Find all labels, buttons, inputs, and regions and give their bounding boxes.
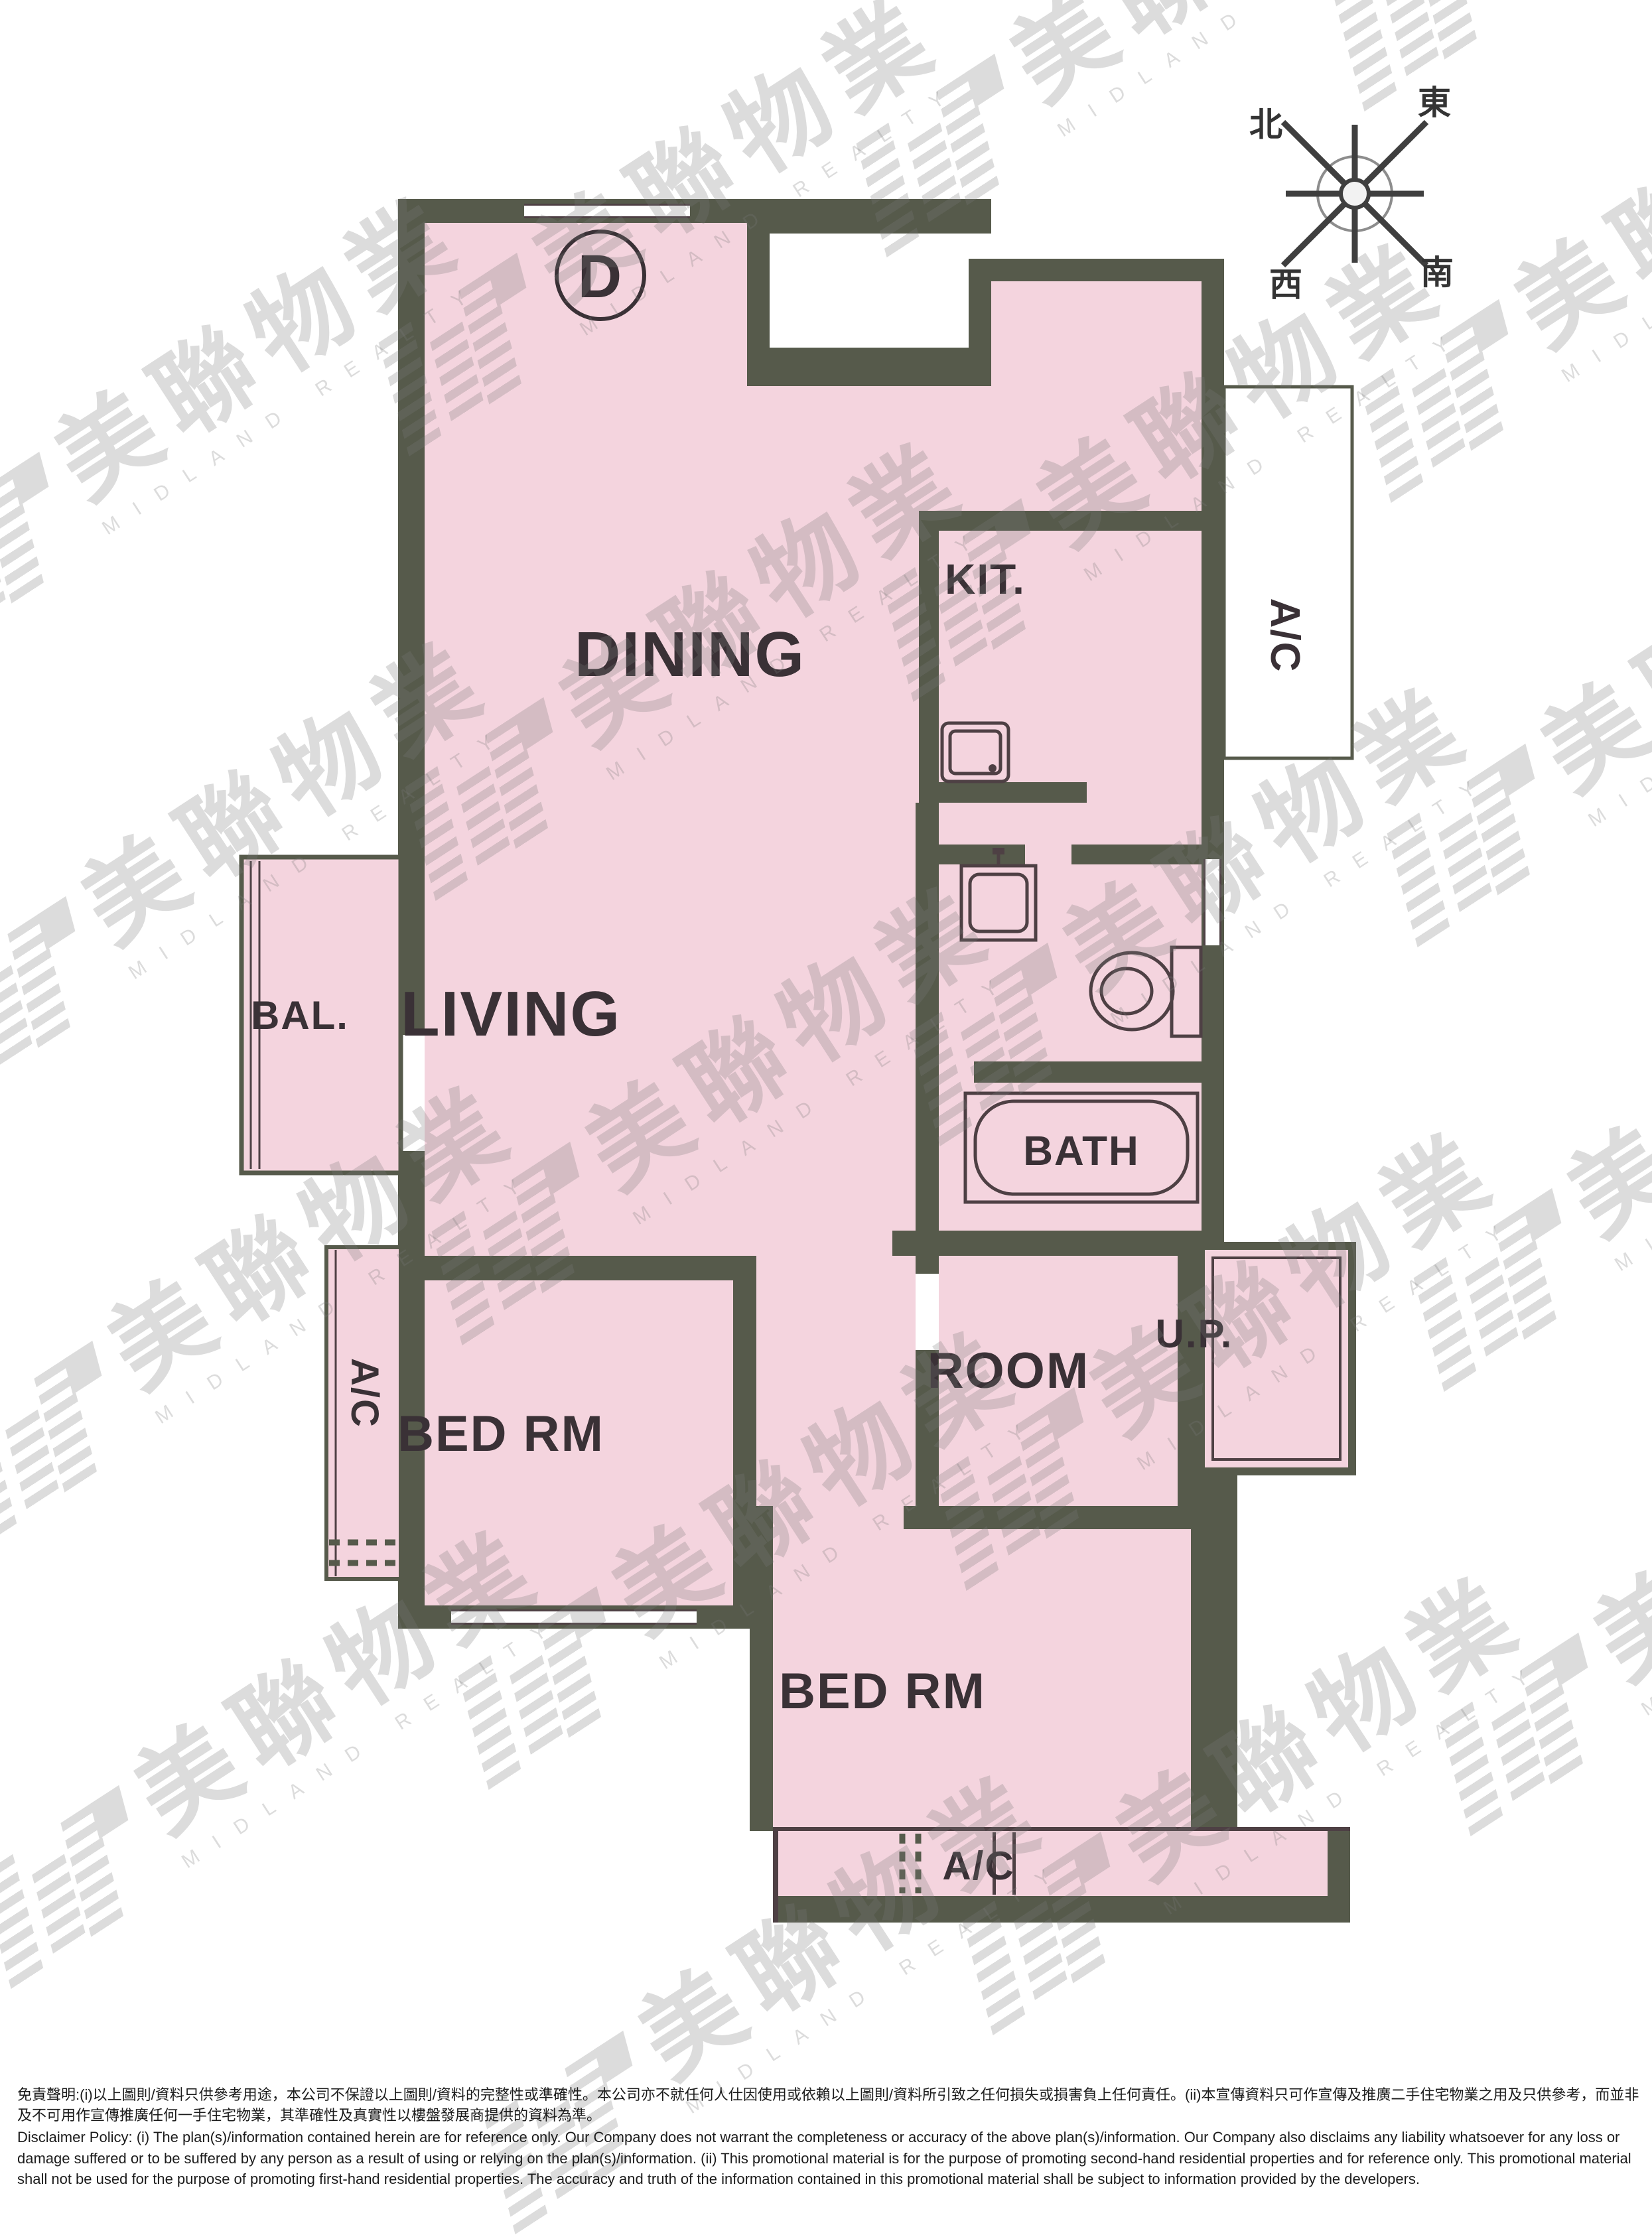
up-platform — [1201, 1246, 1352, 1471]
unit-label-text: D — [578, 243, 623, 310]
label-ac-right: A/C — [1262, 598, 1308, 673]
disclaimer-zh: 免責聲明:(i)以上圖則/資料只供參考用途，本公司不保證以上圖則/資料的完整性或… — [17, 2084, 1640, 2126]
bedroom2-area — [750, 1486, 1237, 1831]
corridor-area — [733, 1256, 916, 1506]
floor-plan: D DINING LIVING KIT. BATH BAL. BED RM BE… — [0, 0, 1652, 2213]
label-dining: DINING — [575, 619, 805, 690]
ac-bottom-platform-area — [773, 1828, 1350, 1897]
label-bedroom1: BED RM — [397, 1406, 604, 1462]
disclaimer: 免責聲明:(i)以上圖則/資料只供參考用途，本公司不保證以上圖則/資料的完整性或… — [17, 2084, 1640, 2191]
compass-south: 南 — [1420, 254, 1454, 291]
window-top — [524, 205, 690, 217]
label-room: ROOM — [928, 1343, 1089, 1399]
top-notch — [770, 234, 969, 348]
compass: 北 東 西 南 — [1249, 84, 1454, 303]
label-bedroom2: BED RM — [779, 1663, 986, 1720]
ac-bottom-platform-edge — [773, 1827, 1350, 1831]
label-balcony: BAL. — [251, 993, 349, 1038]
compass-west: 西 — [1269, 266, 1302, 303]
page: { "unit": { "label": "D" }, "compass": {… — [0, 0, 1652, 2213]
label-ac-bottom: A/C — [942, 1844, 1014, 1888]
ac-right-platform — [1224, 387, 1352, 758]
window-bath — [1204, 859, 1221, 945]
label-living: LIVING — [401, 979, 621, 1050]
compass-east: 東 — [1418, 84, 1451, 121]
kitchen-bath-column-area — [916, 259, 1224, 1254]
disclaimer-en: Disclaimer Policy: (i) The plan(s)/infor… — [17, 2127, 1640, 2189]
room-door-gap — [916, 1274, 939, 1350]
label-up: U.P. — [1156, 1312, 1233, 1356]
compass-north: 北 — [1249, 106, 1282, 143]
compass-hub — [1341, 180, 1369, 208]
label-ac-left: A/C — [343, 1358, 386, 1428]
window-bedroom1 — [451, 1611, 697, 1623]
label-kitchen: KIT. — [945, 555, 1026, 603]
label-bath: BATH — [1023, 1128, 1140, 1174]
